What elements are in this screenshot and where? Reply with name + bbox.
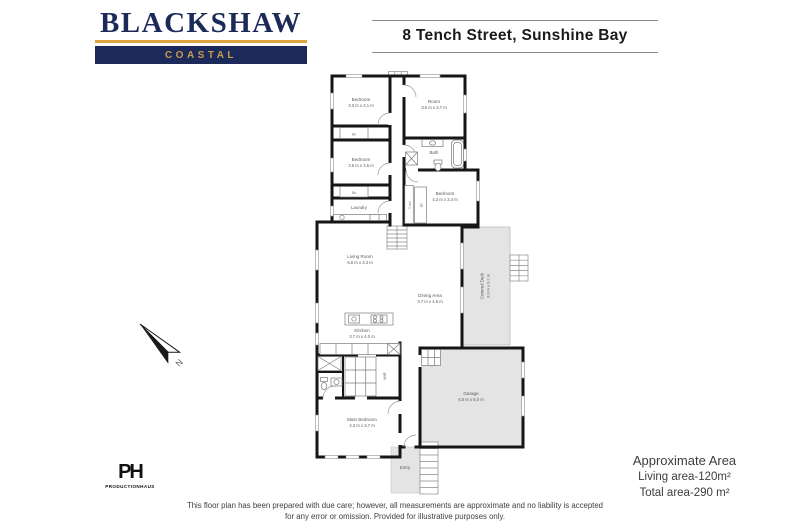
address-header: 8 Tench Street, Sunshine Bay [372, 20, 658, 53]
dims-deck: 3.0 m x 9.2 m [486, 273, 491, 298]
label-bedroom1: Bedroom [352, 97, 371, 102]
dims-dining: 3.7 m x 4.6 m [417, 299, 443, 304]
floor-plan-drawing: Bedroom 3.3 m x 3.1 m Room 3.5 m x 3.7 m… [300, 65, 620, 500]
north-arrow-icon: N [136, 318, 192, 374]
label-main-bedroom: Main Bedroom [347, 417, 377, 422]
area-summary: Approximate Area Living area-120m² Total… [597, 452, 772, 501]
label-living: Living Room [347, 254, 373, 259]
living-area-value: Living area-120m² [597, 470, 772, 486]
label-kitchen: Kitchen [354, 328, 370, 333]
label-entry: Entry [400, 465, 411, 470]
disclaimer: This floor plan has been prepared with d… [95, 501, 695, 523]
hall-steps [387, 226, 407, 249]
page-title: 8 Tench Street, Sunshine Bay [372, 27, 658, 45]
label-bath: Bath [429, 150, 439, 155]
dims-room: 3.5 m x 3.7 m [421, 105, 447, 110]
label-bedroom3: Bedroom [436, 191, 455, 196]
brand-tagline: COASTAL [95, 46, 307, 64]
dims-bedroom1: 3.3 m x 3.1 m [348, 103, 374, 108]
productionhaus-monogram-icon: PH [103, 461, 157, 483]
brand-logo: BLACKSHAW COASTAL [95, 8, 307, 64]
dims-garage: 6.0 m x 6.0 m [458, 397, 484, 402]
dims-living: 6.6 m x 3.4 m [347, 260, 373, 265]
productionhaus-name: PRODUCTIONHAUS [103, 484, 157, 489]
brand-gold-rule [95, 40, 307, 43]
deck-steps [510, 255, 528, 281]
label-bedroom2: Bedroom [352, 157, 371, 162]
disclaimer-line-1: This floor plan has been prepared with d… [95, 501, 695, 512]
label-cupboard: Cupd [408, 201, 412, 209]
dims-bedroom2: 3.5 m x 3.5 m [348, 163, 374, 168]
floor-plan: Bedroom 3.3 m x 3.1 m Room 3.5 m x 3.7 m… [300, 65, 620, 505]
dims-kitchen: 3.7 m x 4.0 m [349, 334, 375, 339]
label-garage: Garage [463, 391, 479, 396]
entry-floor [391, 447, 420, 493]
label-laundry: Laundry [351, 205, 368, 210]
dims-bedroom3: 4.3 m x 3.4 m [432, 197, 458, 202]
entry-steps [420, 442, 438, 494]
area-summary-title: Approximate Area [597, 452, 772, 470]
brand-name: BLACKSHAW [95, 8, 307, 38]
label-deck: Covered Deck [480, 272, 485, 299]
label-dining: Dining Area [418, 293, 442, 298]
production-credit: PH PRODUCTIONHAUS [103, 461, 157, 489]
compass-north-label: N [173, 357, 184, 368]
total-area-value: Total area-290 m² [597, 486, 772, 502]
label-room: Room [428, 99, 440, 104]
label-wir: WIR [383, 372, 387, 380]
floorplan-page: BLACKSHAW COASTAL 8 Tench Street, Sunshi… [0, 0, 790, 527]
disclaimer-line-2: for any error or omission. Provided for … [95, 512, 695, 523]
dims-main-bedroom: 4.3 m x 3.7 m [349, 423, 375, 428]
compass: N [136, 318, 192, 379]
